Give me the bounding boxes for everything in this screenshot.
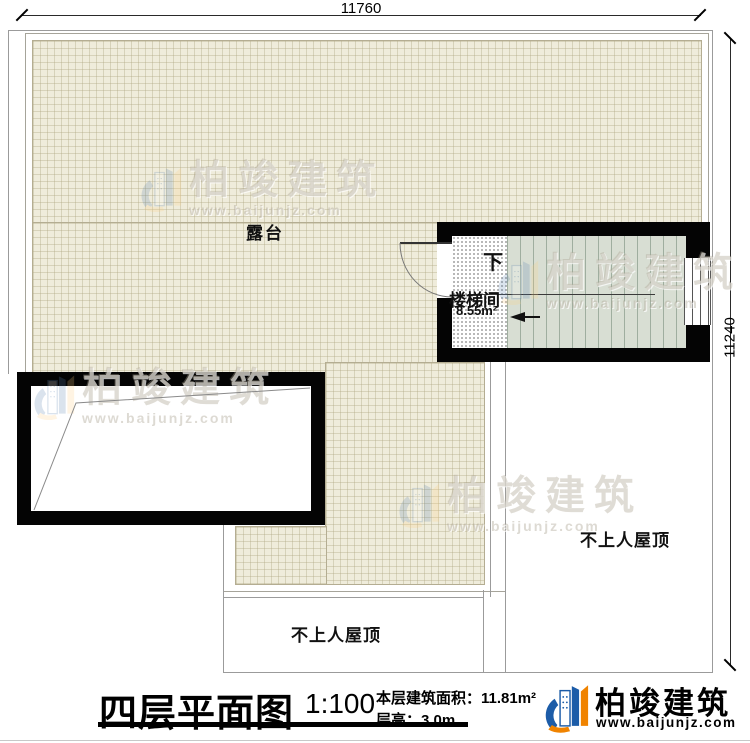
void-interior xyxy=(31,386,311,511)
outline-lowerleft-vertical xyxy=(223,525,224,673)
stair-treads xyxy=(507,236,686,348)
sheet-scale: 1:100 xyxy=(305,688,375,720)
stair-direction-arrow-icon xyxy=(510,312,525,322)
terrace-tiles-top xyxy=(32,40,702,224)
roof-right-label: 不上人屋顶 xyxy=(580,526,670,551)
floorplan-canvas: 11760 11240 露台 下 楼梯间 8.55m² 不上人屋顶 不上人屋顶 … xyxy=(0,0,750,743)
dimension-right-value: 11240 xyxy=(722,310,739,366)
outline-top xyxy=(8,30,713,31)
sheet-title: 四层平面图 xyxy=(99,682,294,737)
roof-bottom-top-edge xyxy=(223,597,484,598)
terrace-tiles-left xyxy=(32,222,439,376)
outline-bottom xyxy=(223,672,713,673)
terrace-right-edge-lower xyxy=(483,590,484,673)
blank-lower-left xyxy=(9,525,223,677)
stair-down-label: 下 xyxy=(483,246,503,275)
page-bottom-line xyxy=(0,740,750,741)
terrace-parapet-line-490 xyxy=(490,362,491,597)
roof-area-right xyxy=(505,362,713,673)
stair-direction-arrow-tail xyxy=(524,316,540,318)
outline-right xyxy=(712,30,713,673)
brand-logo-icon xyxy=(542,676,589,736)
terrace-tiles-lower xyxy=(325,362,485,585)
floor-area-text: 本层建筑面积：11.81m² xyxy=(376,687,536,708)
outline-left xyxy=(8,30,9,374)
roof-bottom-label: 不上人屋顶 xyxy=(291,621,381,646)
terrace-label: 露台 xyxy=(246,219,284,244)
stairwell-area-label: 8.55m² xyxy=(456,303,497,318)
dimension-top-value: 11760 xyxy=(330,0,392,17)
roof-separator-vertical xyxy=(505,362,506,673)
stairwell-window xyxy=(684,258,711,325)
terrace-tiles-below-void xyxy=(235,526,327,585)
brand-url: www.baijunjz.com xyxy=(596,715,737,730)
floor-height-text: 层高：3.0m xyxy=(376,709,455,730)
